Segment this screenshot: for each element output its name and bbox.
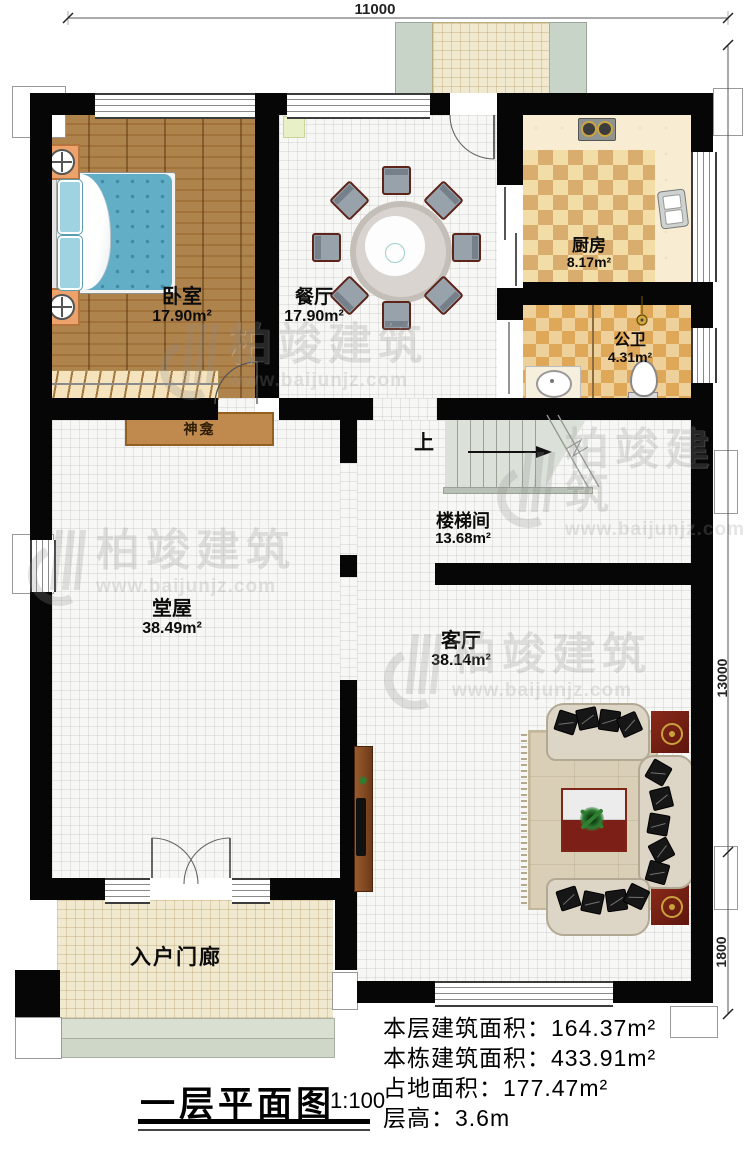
room-area: 17.90m² [152, 308, 212, 326]
title-underline [138, 1129, 370, 1131]
wall-hall-east-1 [340, 410, 357, 463]
faucet-icon [550, 379, 554, 383]
side-table [651, 885, 689, 925]
room-name: 卧室 [152, 286, 212, 308]
kitchen-sink [657, 188, 689, 229]
lamp-icon [49, 149, 75, 175]
bathroom-door-gap [497, 320, 523, 396]
plan-scale: 1:100 [330, 1088, 385, 1114]
wall-hall-east-2 [340, 555, 357, 577]
wall-mid-1 [30, 398, 218, 420]
stairs-break [545, 415, 589, 487]
side-table [651, 711, 689, 753]
wall-right-2 [691, 282, 713, 328]
footing-marker [714, 450, 738, 514]
wall-bedroom-dining [255, 115, 279, 398]
burner-icon [597, 121, 613, 137]
dining-back-door-gap [450, 93, 497, 115]
wall-top-4 [497, 93, 713, 115]
room-area: 8.17m² [567, 255, 611, 271]
wall-mid-2 [279, 398, 373, 420]
dining-table-centerpiece [385, 243, 405, 263]
stairs-base [443, 487, 593, 494]
room-name: 餐厅 [284, 287, 344, 308]
porch-step-1 [57, 1018, 335, 1040]
footing-marker [15, 1017, 62, 1059]
living-window [435, 981, 613, 1007]
room-label-living: 客厅 38.14m² [431, 630, 491, 670]
stat-line: 本栋建筑面积：433.91m² [383, 1043, 656, 1073]
wall-left-2 [30, 592, 52, 900]
dining-chair [452, 233, 481, 262]
room-label-porch: 入户门廊 [130, 946, 222, 970]
dimension-top: 11000 [335, 1, 415, 18]
wall-mid-3 [437, 398, 691, 420]
stat-line: 本层建筑面积：164.37m² [383, 1013, 656, 1043]
dining-chair [382, 166, 411, 195]
hall-opening-floor-1 [340, 463, 357, 555]
wall-top-3 [430, 93, 450, 115]
tv-icon [356, 798, 366, 856]
sofa-pillow [580, 890, 605, 915]
room-name: 客厅 [431, 630, 491, 652]
room-name: 入户门廊 [130, 946, 222, 970]
lamp-icon [49, 294, 75, 320]
wall-right-1 [691, 93, 713, 152]
wall-top-2 [255, 93, 287, 115]
room-label-hall: 堂屋 38.49m² [142, 598, 202, 638]
dining-chair [382, 301, 411, 330]
kitchen-sliding-door-gap [497, 185, 523, 288]
rear-porch-floor [432, 22, 550, 95]
bed-pillow [58, 236, 82, 290]
room-name: 厨房 [567, 236, 611, 255]
footing-marker [670, 1006, 718, 1038]
dimension-right-main: 13000 [714, 644, 730, 712]
bedroom-window [95, 93, 255, 119]
area-stats: 本层建筑面积：164.37m² 本栋建筑面积：433.91m² 占地面积：177… [383, 1013, 656, 1133]
room-area: 17.90m² [284, 308, 344, 326]
hall-opening-floor-2 [340, 577, 357, 680]
stairs [445, 415, 545, 487]
room-name: 公卫 [608, 332, 652, 350]
rear-porch-pier-left [395, 22, 434, 95]
bathroom-partition [592, 305, 594, 398]
hall-window [30, 540, 56, 592]
wall-hall-bottom-2 [270, 878, 357, 900]
floor-plan-canvas: 神龛 卧室 17.90m² 餐厅 17.90m² 厨房 8.17m² 公卫 4.… [0, 0, 750, 1150]
dining-hall-passage-floor [373, 398, 437, 420]
sink-basin [664, 209, 684, 225]
footing-marker [714, 846, 738, 910]
kitchen-window [691, 152, 717, 282]
dimension-right-porch: 1800 [713, 922, 729, 982]
room-name: 堂屋 [142, 598, 202, 620]
plant-icon [358, 776, 368, 785]
sofa-pillow [575, 706, 600, 731]
footing-marker [332, 972, 358, 1010]
table-medallion-icon [661, 723, 683, 745]
wall-stair-living [435, 563, 691, 585]
shrine-label: 神龛 [184, 419, 216, 439]
rug-fringe [521, 732, 527, 904]
room-area: 13.68m² [435, 531, 491, 548]
wall-right-3 [691, 383, 713, 1003]
room-label-stairwell: 楼梯间 13.68m² [435, 511, 491, 548]
porch-column [15, 970, 60, 1017]
sink-basin [662, 194, 682, 210]
wall-left-1 [30, 93, 52, 540]
rear-porch-pier-right [548, 22, 587, 95]
bathroom-window [691, 328, 717, 383]
wardrobe [44, 370, 219, 400]
stairs-up-label: 上 [414, 432, 434, 454]
bathroom-sink [536, 370, 572, 398]
room-name: 楼梯间 [435, 511, 491, 531]
room-label-dining: 餐厅 17.90m² [284, 287, 344, 326]
hall-floor [52, 420, 340, 878]
bed-pillow [58, 180, 82, 234]
footing-marker [713, 88, 743, 136]
wall-kitchen-bath [497, 282, 691, 305]
room-label-bathroom: 公卫 4.31m² [608, 332, 652, 366]
room-area: 4.31m² [608, 350, 652, 366]
plant-icon [577, 804, 607, 834]
burner-icon [581, 121, 597, 137]
title-underline [138, 1119, 370, 1124]
floor-drain [283, 116, 305, 138]
entry-sidelight-left [105, 878, 150, 904]
sofa-pillow [646, 812, 670, 836]
entrance-door-gap [150, 878, 232, 900]
room-area: 38.49m² [142, 620, 202, 638]
stat-line: 层高：3.6m [383, 1103, 656, 1133]
table-medallion-icon [661, 896, 683, 918]
wall-hall-bottom-1 [30, 878, 105, 900]
entry-sidelight-right [232, 878, 270, 904]
room-label-kitchen: 厨房 8.17m² [567, 236, 611, 271]
room-label-bedroom: 卧室 17.90m² [152, 286, 212, 326]
dining-chair [312, 233, 341, 262]
porch-step-2 [57, 1038, 335, 1058]
stat-line: 占地面积：177.47m² [383, 1073, 656, 1103]
wall-living-bottom-2 [613, 981, 713, 1003]
wall-living-bottom-1 [357, 981, 435, 1003]
dining-window [287, 93, 430, 119]
room-area: 38.14m² [431, 652, 491, 670]
wall-kitchen-west-1 [497, 115, 523, 185]
wall-porch-right [335, 900, 357, 970]
